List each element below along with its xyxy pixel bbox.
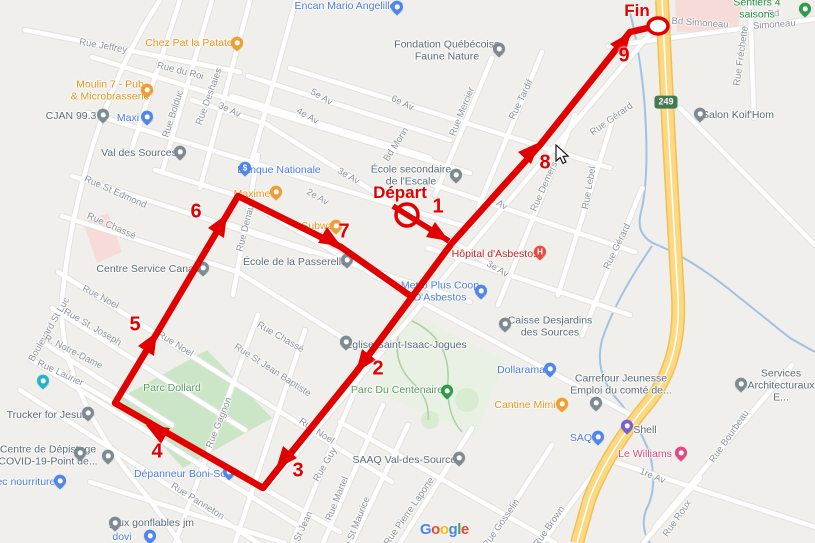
google-logo-letter: G bbox=[420, 521, 431, 538]
route-waypoint-8: 8 bbox=[539, 152, 550, 175]
route-waypoint-9: 9 bbox=[618, 45, 629, 68]
route-waypoint-5: 5 bbox=[129, 314, 140, 337]
route-waypoint-7: 7 bbox=[338, 221, 349, 244]
route-end-label: Fin bbox=[624, 1, 650, 21]
map-canvas[interactable]: Rue JeffreyRue du RoiRue BolducRue Desha… bbox=[0, 0, 815, 543]
google-logo-letter: e bbox=[461, 521, 469, 538]
route-waypoint-2: 2 bbox=[372, 358, 383, 381]
google-logo[interactable]: Google bbox=[420, 521, 469, 538]
route-waypoint-1: 1 bbox=[432, 196, 443, 219]
route-start-label: Départ bbox=[373, 183, 427, 203]
route-waypoint-4: 4 bbox=[151, 441, 162, 464]
route-waypoint-3: 3 bbox=[292, 460, 303, 483]
highway-shield-249: 249 bbox=[654, 96, 677, 109]
google-logo-letter: o bbox=[440, 521, 449, 538]
google-logo-letter: g bbox=[449, 521, 458, 538]
google-logo-letter: o bbox=[431, 521, 440, 538]
route-waypoint-6: 6 bbox=[190, 201, 201, 224]
